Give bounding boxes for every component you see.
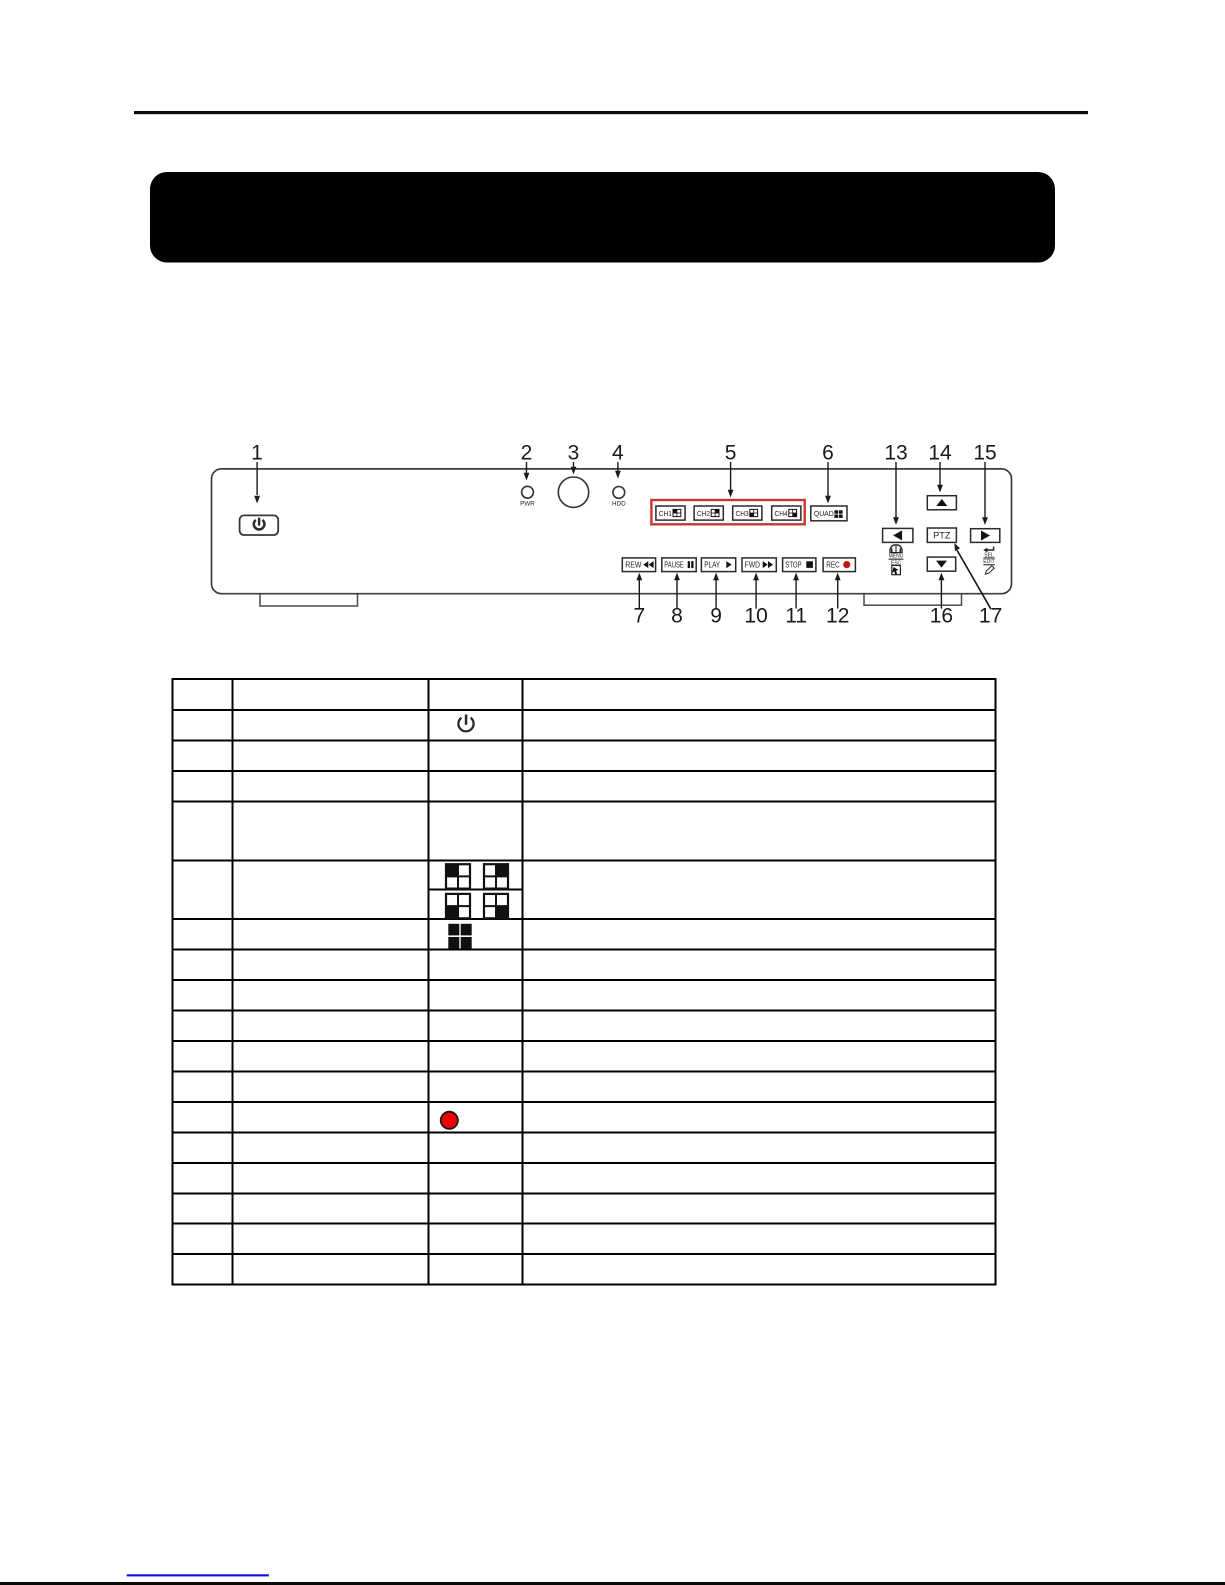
svg-text:6: 6	[822, 442, 834, 465]
svg-text:PTZ: PTZ	[933, 530, 951, 540]
svg-text:13: 13	[884, 442, 907, 465]
svg-text:STOP: STOP	[785, 559, 801, 569]
svg-text:5: 5	[725, 442, 737, 465]
svg-text:CH2: CH2	[697, 511, 710, 518]
svg-text:CH3: CH3	[736, 511, 749, 518]
svg-text:QUAD: QUAD	[814, 511, 834, 518]
svg-text:PAUSE: PAUSE	[664, 559, 684, 569]
svg-text:14: 14	[928, 442, 952, 465]
svg-text:REW: REW	[625, 559, 641, 569]
svg-text:PWR: PWR	[520, 501, 535, 508]
svg-text:REC: REC	[826, 559, 839, 569]
svg-text:4: 4	[612, 442, 624, 465]
svg-text:PLAY: PLAY	[704, 559, 720, 569]
svg-text:CH4: CH4	[775, 511, 788, 518]
svg-text:HDD: HDD	[612, 501, 626, 508]
svg-text:FWD: FWD	[745, 559, 760, 569]
svg-text:15: 15	[973, 442, 996, 465]
svg-text:2: 2	[521, 442, 533, 465]
svg-text:CH1: CH1	[659, 511, 672, 518]
svg-text:1: 1	[251, 442, 263, 465]
svg-text:3: 3	[568, 442, 580, 465]
